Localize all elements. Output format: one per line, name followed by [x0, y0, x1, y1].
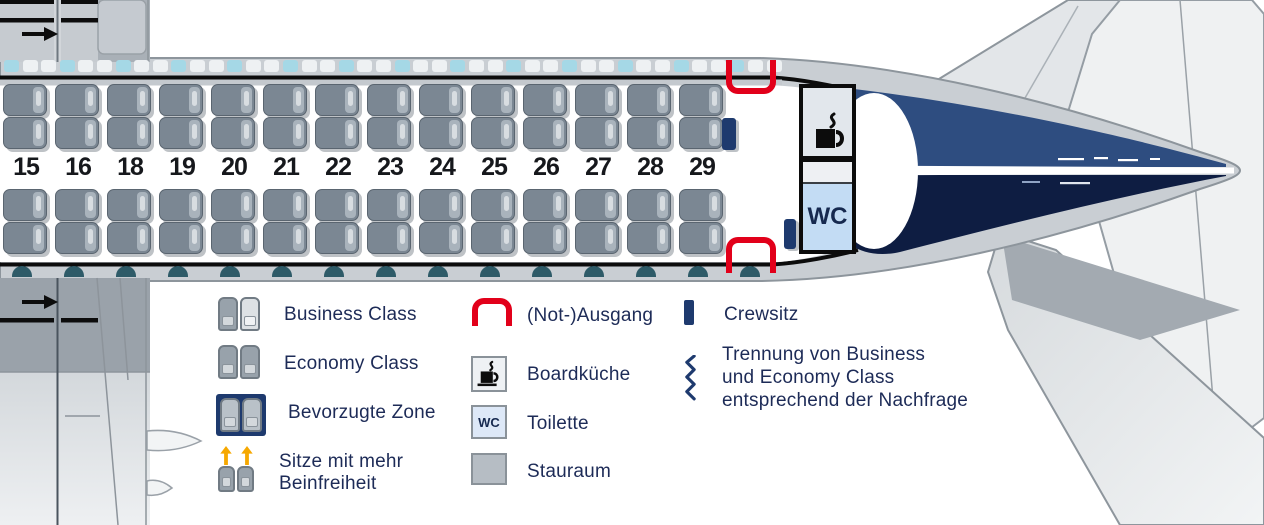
- business-class-icon: [218, 297, 260, 331]
- cabin-window: [692, 60, 707, 72]
- legend-legroom-line2: Beinfreiheit: [279, 472, 376, 495]
- row-number: 19: [159, 152, 205, 182]
- wing-bottom: [0, 278, 201, 525]
- legend-legroom-line1: Sitze mit mehr: [279, 450, 403, 473]
- economy-class-icon: [218, 345, 260, 379]
- seat-column-15: 15: [3, 84, 47, 257]
- galley-section: [803, 88, 852, 162]
- seat: [3, 222, 47, 254]
- cabin-window: [283, 60, 298, 72]
- seat: [55, 84, 99, 116]
- galley-icon: [471, 356, 507, 392]
- seat: [575, 189, 619, 221]
- seat: [419, 117, 463, 149]
- cabin-window: [506, 60, 521, 72]
- seat: [627, 189, 671, 221]
- seat: [679, 84, 723, 116]
- bevorzugte-zone-icon: [216, 394, 266, 436]
- seat-column-16: 16: [55, 84, 99, 257]
- seat-column-19: 19: [159, 84, 203, 257]
- cabin-window: [543, 60, 558, 72]
- cabin-window: [171, 60, 186, 72]
- seat: [419, 222, 463, 254]
- cabin-window: [395, 60, 410, 72]
- crew-seat: [784, 219, 796, 249]
- cabin-window: [302, 60, 317, 72]
- legend-trennung-line2: und Economy Class: [722, 366, 894, 389]
- seat: [315, 189, 359, 221]
- cabin-window: [674, 60, 689, 72]
- seat: [419, 189, 463, 221]
- legend-toilet: Toilette: [527, 412, 589, 435]
- seat: [107, 84, 151, 116]
- cabin-window: [23, 60, 38, 72]
- cabin-window: [116, 60, 131, 72]
- seat-column-20: 20: [211, 84, 255, 257]
- seat: [3, 189, 47, 221]
- row-number: 24: [419, 152, 465, 182]
- legend-bevorzugte-zone: Bevorzugte Zone: [288, 401, 436, 424]
- cabin-window: [525, 60, 540, 72]
- row-number: 22: [315, 152, 361, 182]
- seat: [315, 222, 359, 254]
- cabin-window: [320, 60, 335, 72]
- legend-galley: Boardküche: [527, 363, 630, 386]
- seat: [211, 222, 255, 254]
- up-arrow-icon: [220, 446, 232, 465]
- seat: [211, 189, 255, 221]
- row-number: 26: [523, 152, 569, 182]
- seat-column-23: 23: [367, 84, 411, 257]
- aircraft-seatmap: 1516181920212223242526272829 WC Business…: [0, 0, 1264, 525]
- cabin-window: [618, 60, 633, 72]
- seat: [263, 117, 307, 149]
- coffee-cup-icon: [476, 360, 502, 388]
- cabin-window: [469, 60, 484, 72]
- legend-crewsitz: Crewsitz: [724, 303, 798, 326]
- cabin-window: [450, 60, 465, 72]
- row-number: 20: [211, 152, 257, 182]
- cabin-window: [581, 60, 596, 72]
- cabin-window: [134, 60, 149, 72]
- legend-trennung-line1: Trennung von Business: [722, 343, 925, 366]
- seat: [575, 84, 619, 116]
- seat-column-28: 28: [627, 84, 671, 257]
- cabin-window: [78, 60, 93, 72]
- seat: [55, 117, 99, 149]
- wing-top: [0, 0, 150, 62]
- seat: [159, 117, 203, 149]
- cabin-window: [246, 60, 261, 72]
- seat: [211, 84, 255, 116]
- seat: [627, 117, 671, 149]
- seat-column-22: 22: [315, 84, 359, 257]
- seat: [159, 189, 203, 221]
- seat: [679, 117, 723, 149]
- cabin-window: [227, 60, 242, 72]
- row-number: 29: [679, 152, 725, 182]
- row-number: 16: [55, 152, 101, 182]
- cabin-window: [413, 60, 428, 72]
- cabin-window: [655, 60, 670, 72]
- exit-icon: [472, 298, 512, 326]
- seat: [471, 189, 515, 221]
- cabin-window: [636, 60, 651, 72]
- emergency-exit-bottom: [726, 237, 776, 273]
- seat: [263, 189, 307, 221]
- seat: [315, 84, 359, 116]
- crew-seat-icon: [684, 300, 694, 325]
- seat: [367, 84, 411, 116]
- seat: [367, 117, 411, 149]
- seat: [211, 117, 255, 149]
- seat: [107, 222, 151, 254]
- legend-trennung-line3: entsprechend der Nachfrage: [722, 389, 968, 412]
- seat: [159, 84, 203, 116]
- cabin-window: [711, 60, 726, 72]
- legend-stauraum: Stauraum: [527, 460, 611, 483]
- cabin-window: [190, 60, 205, 72]
- cabin-window: [339, 60, 354, 72]
- row-number: 21: [263, 152, 309, 182]
- seat: [107, 117, 151, 149]
- coffee-cup-icon: [810, 109, 848, 157]
- seat: [471, 84, 515, 116]
- cabin-window: [264, 60, 279, 72]
- galley-divider: [803, 162, 852, 184]
- cabin-window: [153, 60, 168, 72]
- up-arrow-icon: [241, 446, 253, 465]
- cabin-window: [357, 60, 372, 72]
- seat-column-25: 25: [471, 84, 515, 257]
- toilet-icon: WC: [471, 405, 507, 439]
- cabin-window: [209, 60, 224, 72]
- seat: [419, 84, 463, 116]
- seat-column-26: 26: [523, 84, 567, 257]
- row-number: 15: [3, 152, 49, 182]
- seat: [627, 84, 671, 116]
- cabin-window: [432, 60, 447, 72]
- galley-wc-module: WC: [799, 84, 856, 254]
- seat-column-18: 18: [107, 84, 151, 257]
- row-number: 25: [471, 152, 517, 182]
- seat: [3, 117, 47, 149]
- cabin-window: [4, 60, 19, 72]
- cabin-window: [376, 60, 391, 72]
- crew-seat: [722, 118, 736, 150]
- seat: [263, 222, 307, 254]
- legend-economy-class: Economy Class: [284, 352, 419, 375]
- seat: [367, 189, 411, 221]
- flap-fairing: [147, 480, 172, 495]
- cabin-window: [599, 60, 614, 72]
- seat: [575, 222, 619, 254]
- aircraft-artwork: [0, 0, 1264, 525]
- seat: [367, 222, 411, 254]
- seat: [315, 117, 359, 149]
- seat: [107, 189, 151, 221]
- seat: [523, 189, 567, 221]
- cabin-window: [41, 60, 56, 72]
- legroom-seats-icon: [218, 446, 254, 492]
- row-number: 27: [575, 152, 621, 182]
- wc-section: WC: [803, 184, 852, 250]
- legend-exit: (Not-)Ausgang: [527, 304, 653, 327]
- class-divider-icon: [683, 355, 699, 406]
- flap-fairing: [147, 430, 201, 450]
- seat: [3, 84, 47, 116]
- seat-column-27: 27: [575, 84, 619, 257]
- seat: [523, 222, 567, 254]
- seat: [471, 222, 515, 254]
- seat: [627, 222, 671, 254]
- seat: [523, 117, 567, 149]
- seat: [55, 189, 99, 221]
- cabin-window: [488, 60, 503, 72]
- legend-business-class: Business Class: [284, 303, 417, 326]
- cabin-window: [562, 60, 577, 72]
- seat: [679, 222, 723, 254]
- row-number: 23: [367, 152, 413, 182]
- seat-column-29: 29: [679, 84, 723, 257]
- row-number: 28: [627, 152, 673, 182]
- seat: [263, 84, 307, 116]
- seat: [575, 117, 619, 149]
- seat: [523, 84, 567, 116]
- cabin-window: [60, 60, 75, 72]
- stauraum-icon: [471, 453, 507, 485]
- seat: [159, 222, 203, 254]
- emergency-exit-top: [726, 60, 776, 94]
- seat-column-24: 24: [419, 84, 463, 257]
- cabin-window: [97, 60, 112, 72]
- seat-column-21: 21: [263, 84, 307, 257]
- seat: [679, 189, 723, 221]
- row-number: 18: [107, 152, 153, 182]
- seat: [471, 117, 515, 149]
- seat: [55, 222, 99, 254]
